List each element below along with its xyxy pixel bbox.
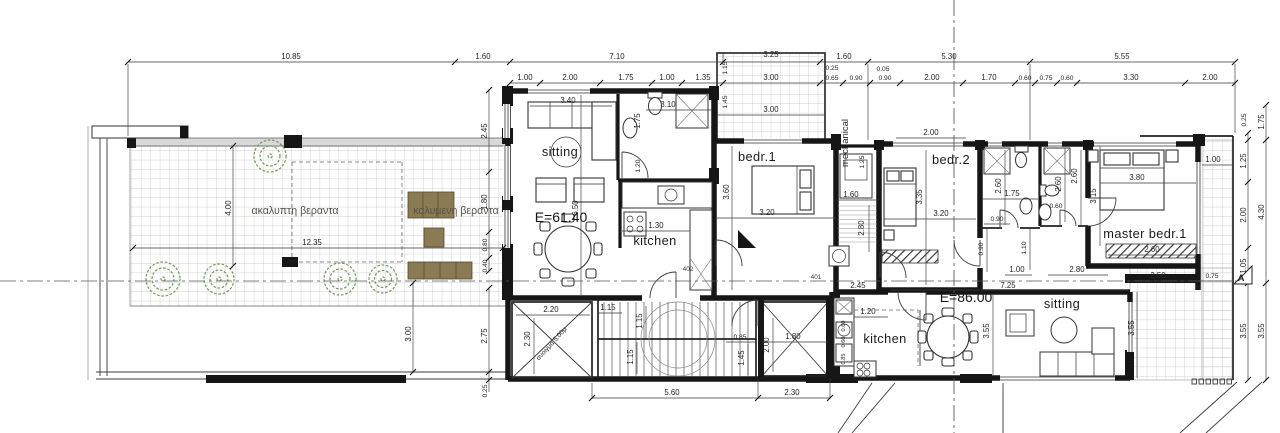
dimension-label: 1.75 [1004, 189, 1020, 198]
dimension-label: 2.60 [1070, 168, 1079, 184]
tall-units [690, 210, 712, 290]
dimension-label: 1.75 [1257, 114, 1266, 130]
dimension-label: 2.00 [562, 73, 578, 82]
nightstand [1166, 150, 1178, 162]
dimension-label: 2.75 [480, 328, 489, 344]
dimension-label: 0.85 [733, 334, 746, 341]
room-label: sitting [1044, 296, 1080, 311]
outdoor-table [424, 228, 444, 247]
dimension-label: 3.80 [1129, 173, 1145, 182]
dimension-label: 5.55 [1114, 52, 1130, 61]
dimension-label: 3.35 [915, 189, 924, 205]
dimension-label: 0.65 [825, 75, 838, 82]
veranda-terrace [127, 135, 508, 306]
dimension-label: ανοιγμα 5.00μ [535, 326, 569, 362]
dimension-label: 1.60 [836, 52, 852, 61]
pillow [800, 170, 811, 188]
dimension-label: 0.80 [482, 238, 489, 251]
room-number-label: 401 [811, 274, 822, 281]
pillow [901, 171, 913, 181]
dimension-label: 2.60 [1054, 176, 1063, 192]
dimension-label: 1.75 [633, 113, 642, 129]
dimension-label: 2.00 [1202, 73, 1218, 82]
dimension-label: 0.40 [482, 259, 489, 272]
master-bedroom-furniture [1088, 150, 1196, 258]
dimension-label: 0.60 [841, 337, 847, 348]
washer [829, 246, 849, 266]
dimension-label: 2.60 [994, 178, 1003, 194]
nightstand [884, 230, 894, 240]
balcony-above-bedr1 [717, 53, 825, 141]
dimension-label: 1.10 [1021, 241, 1028, 254]
dimension-label: 3.55 [982, 323, 991, 339]
dimension-label: 1.00 [517, 73, 533, 82]
southeast-veranda [1130, 268, 1233, 380]
dimension-label: 1.20 [635, 159, 642, 172]
coffee-table [1051, 317, 1077, 343]
dimension-label: 1.60 [475, 52, 491, 61]
dimension-label: 1.35 [695, 73, 711, 82]
dimension-label: 1.70 [981, 73, 997, 82]
dimension-label: 0.75 [1205, 273, 1218, 280]
toilet-icon [1016, 153, 1027, 168]
dimension-label: 4.00 [224, 200, 233, 216]
dimension-label: 1.15 [600, 303, 616, 312]
armchair [574, 178, 604, 202]
dimension-label: 0.60 [841, 321, 847, 332]
dimension-label: 1.15 [635, 313, 644, 329]
room-number-label: 402 [683, 266, 694, 273]
dimension-label: 4.30 [1257, 204, 1266, 220]
dimension-label: 1.00 [1009, 265, 1025, 274]
dimension-label: 3.20 [933, 209, 949, 218]
corner-desk [738, 230, 756, 248]
pillow [1133, 153, 1159, 165]
floor-plan-page: 10.851.607.103.251.605.305.550.250.051.0… [0, 0, 1280, 433]
dimension-label: 2.80 [857, 220, 866, 236]
dimension-label: 2.00 [923, 128, 939, 137]
bathroom-2-fixtures [984, 146, 1032, 214]
dimension-label: 2.00 [1239, 207, 1248, 223]
room-label: E=86.00 [940, 289, 993, 305]
wall-pier [282, 257, 298, 267]
room-label: mechanical [840, 119, 851, 167]
wall-pier [180, 126, 188, 138]
sofa [1040, 352, 1114, 376]
dimension-label: 0.90 [990, 216, 1003, 223]
dimension-label: 0.25 [482, 384, 489, 397]
room-label: ακαλυπτη βεραντα [251, 205, 338, 217]
dimension-label: 5.60 [664, 388, 680, 397]
sitting-room-2-furniture [918, 308, 1114, 376]
sitting-room-1-furniture [528, 102, 616, 286]
dimension-label: 1.20 [860, 307, 876, 316]
wall-pier [284, 135, 302, 148]
dining-table [545, 226, 591, 272]
pillow [887, 171, 899, 181]
dimension-label: 1.75 [618, 73, 634, 82]
dimension-label: 0.75 [1039, 75, 1052, 82]
dimension-label: 0.90 [878, 75, 891, 82]
wardrobe [882, 250, 938, 263]
dimension-label: 1.25 [859, 155, 866, 168]
dimension-label: 3.55 [1257, 323, 1266, 339]
dimension-label: 3.15 [1089, 188, 1098, 204]
dimension-label: 0.90 [849, 75, 862, 82]
dimension-label: 0.25 [825, 65, 838, 72]
dimension-label: 1.80 [785, 332, 801, 341]
floor-plan-canvas: 10.851.607.103.251.605.305.550.250.051.0… [0, 0, 1280, 433]
bedroom-2-furniture [882, 168, 938, 263]
room-label: bedr.1 [738, 149, 776, 164]
dimension-label: 0.60 [1060, 75, 1073, 82]
dimension-label: 7.25 [1000, 281, 1016, 290]
room-label: master bedr.1 [1103, 226, 1186, 241]
nightstand [1088, 150, 1098, 162]
dimension-label: 0.85 [841, 354, 847, 365]
terrace-north-wall [130, 138, 508, 146]
room-label: bedr.2 [932, 152, 970, 167]
dimension-label: 3.00 [763, 73, 779, 82]
dimension-label: 1.15 [722, 61, 729, 74]
dimension-label: 6.50 [571, 200, 580, 216]
dimension-label: 3.00 [404, 326, 413, 342]
dimension-label: 3.60 [722, 184, 731, 200]
dimension-label: 3.30 [1123, 73, 1139, 82]
sofa-corner [1092, 328, 1114, 354]
dimension-label: 0.90 [978, 242, 985, 255]
dimension-label: 2.00 [762, 337, 771, 353]
boundary-lines [838, 382, 1262, 433]
dimension-label: 1.25 [1239, 153, 1248, 169]
dimension-label: 1.15 [626, 349, 635, 365]
dimension-label: 0.05 [876, 66, 889, 73]
chaise [592, 102, 616, 160]
dimension-label: 3.10 [660, 100, 676, 109]
dimension-label: 2.20 [543, 305, 559, 314]
entrance-canopy [92, 126, 188, 138]
dimension-label: 3.55 [1239, 323, 1248, 339]
dimension-label: 7.10 [609, 52, 625, 61]
dimension-label: 0.60 [1049, 203, 1062, 210]
dimension-label: 3.00 [763, 105, 779, 114]
dimension-label: 1.45 [722, 95, 729, 108]
garden-wall [206, 375, 406, 383]
uncovered-veranda-floor [130, 146, 508, 306]
dimension-label: 10.85 [281, 52, 301, 61]
dimension-label: 1.60 [843, 190, 859, 199]
room-label: kitchen [633, 233, 676, 248]
toilet-tank [1015, 146, 1028, 152]
dimension-label: 2.80 [1069, 265, 1085, 274]
dimension-label: 3.20 [759, 208, 775, 217]
room-label: kitchen [863, 331, 906, 346]
dimension-label: 2.30 [784, 388, 800, 397]
pillow [800, 192, 811, 210]
dimension-label: 2.45 [850, 281, 866, 290]
dimension-label: 1.00 [1205, 155, 1221, 164]
dimension-label: 1.30 [648, 221, 664, 230]
dimension-label: 0.60 [1018, 75, 1031, 82]
section-marker-label: A [1238, 273, 1245, 284]
dimension-label: 3.25 [763, 50, 779, 59]
dimension-label: 12.35 [302, 238, 322, 247]
room-label: sitting [542, 144, 578, 159]
dimension-label: 2.30 [523, 331, 532, 347]
dimension-label: 3.40 [560, 96, 576, 105]
dimension-label: 0.25 [1241, 113, 1248, 126]
dimension-label: 2.60 [1144, 245, 1160, 254]
dimension-label: 2.45 [480, 123, 489, 139]
dimension-label: 1.00 [659, 73, 675, 82]
room-label: καλυμενη βεραντα [413, 205, 499, 217]
bedroom-1-furniture [738, 166, 814, 248]
pillow [1104, 153, 1130, 165]
dimension-label: 1.45 [737, 350, 746, 366]
dimension-label: 1.05 [1239, 258, 1248, 274]
dimension-label: 2.00 [924, 73, 940, 82]
sink-icon [1020, 198, 1032, 214]
armchair [536, 178, 566, 202]
dimension-label: 2.50 [1150, 271, 1166, 280]
dimension-label: 5.30 [941, 52, 957, 61]
dimension-label: 3.55 [1127, 320, 1136, 336]
